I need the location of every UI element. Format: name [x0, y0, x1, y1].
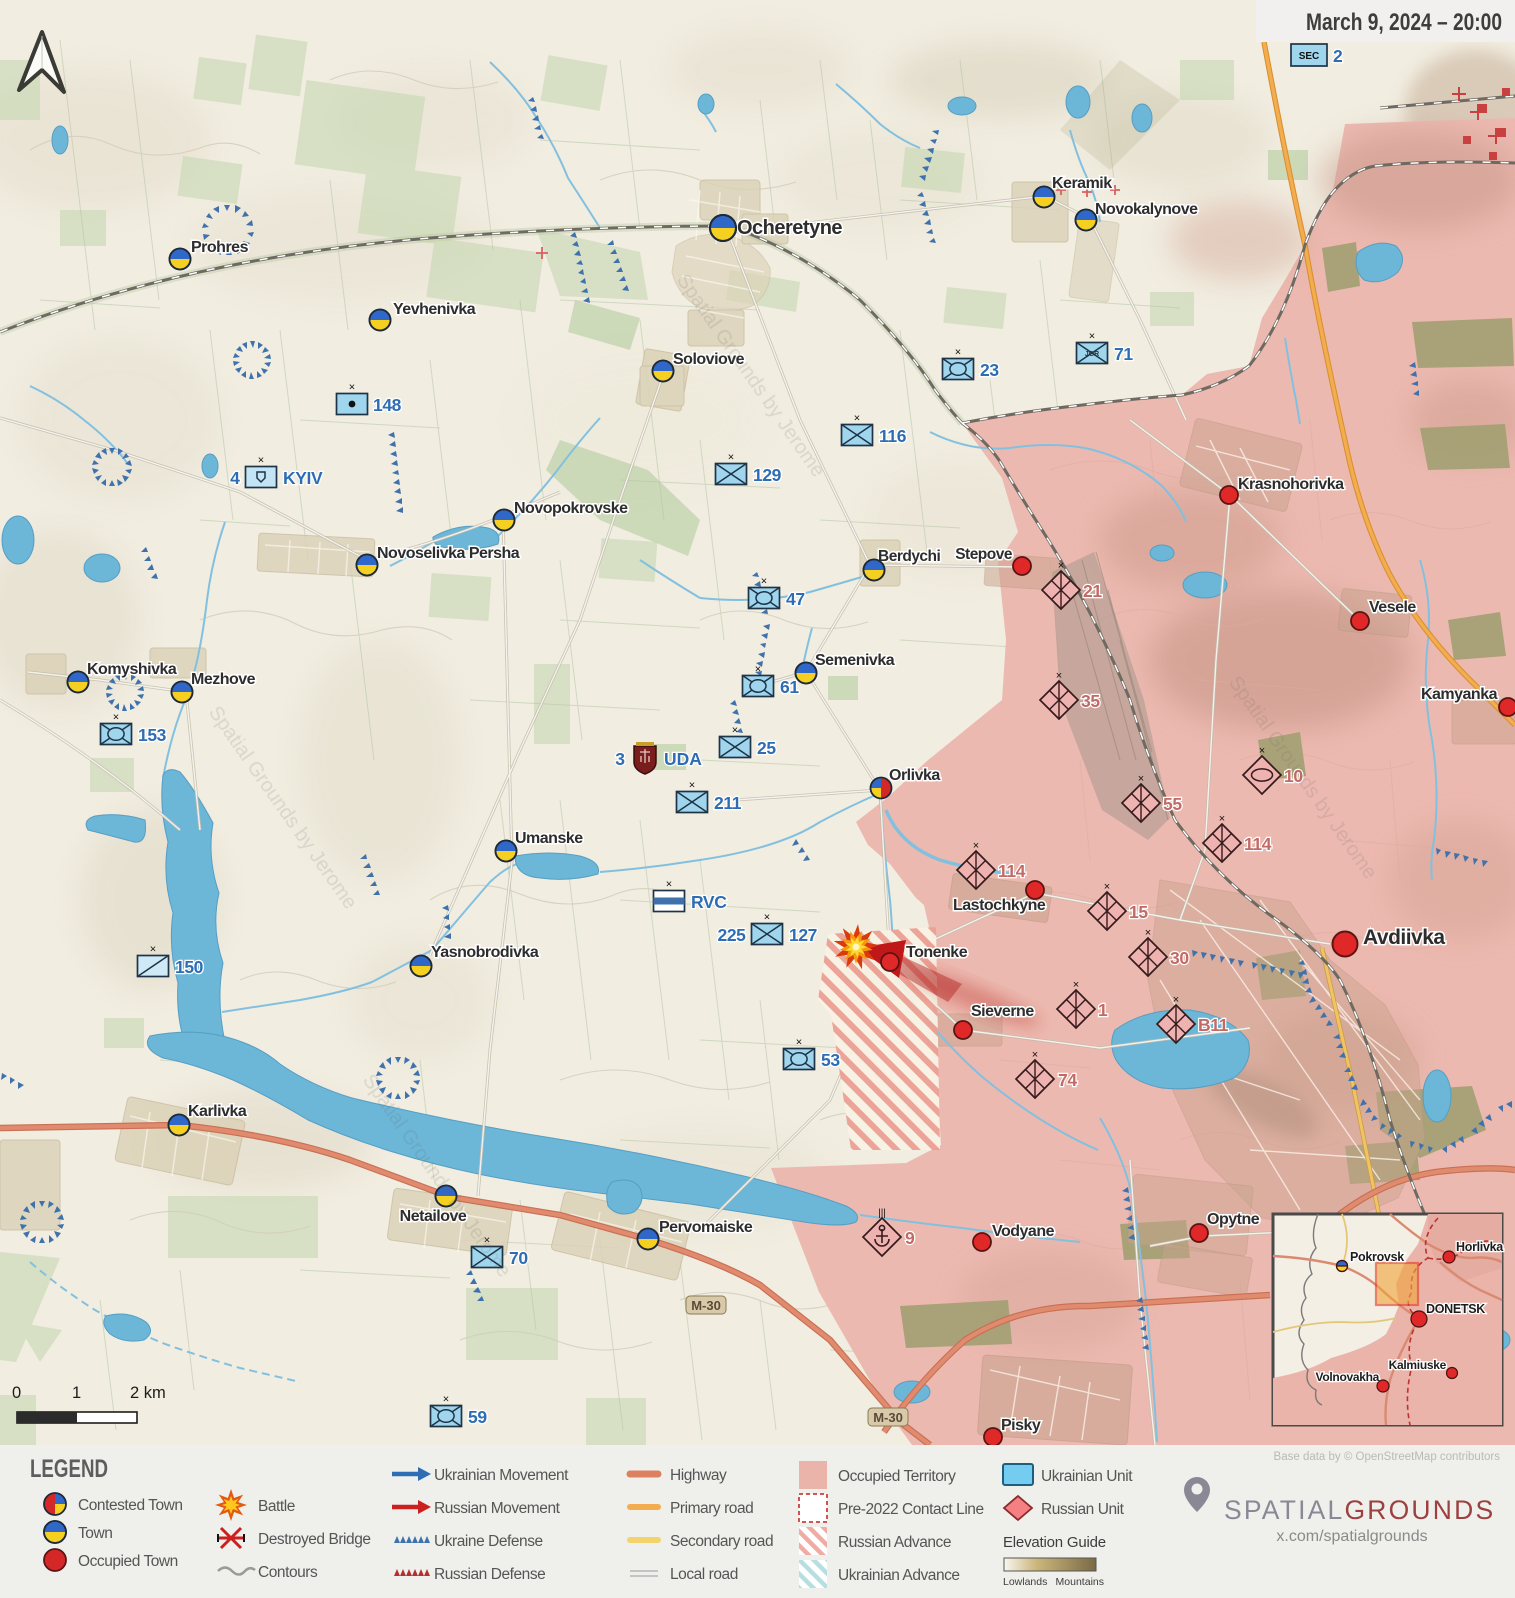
svg-text:Russian Advance: Russian Advance: [838, 1534, 951, 1551]
svg-text:Mezhove: Mezhove: [191, 671, 256, 688]
svg-text:Base data by © OpenStreetMap c: Base data by © OpenStreetMap contributor…: [1274, 1451, 1501, 1463]
svg-text:61: 61: [780, 677, 799, 697]
svg-text:Novoselivka Persha: Novoselivka Persha: [377, 545, 520, 562]
svg-text:211: 211: [714, 793, 742, 813]
svg-text:Contested Town: Contested Town: [78, 1497, 183, 1514]
svg-text:Occupied Territory: Occupied Territory: [838, 1468, 956, 1485]
svg-text:×: ×: [796, 1037, 802, 1049]
svg-text:Horlivka: Horlivka: [1456, 1240, 1504, 1254]
svg-text:×: ×: [732, 725, 738, 737]
svg-text:Sieverne: Sieverne: [971, 1003, 1034, 1020]
svg-text:Karlivka: Karlivka: [188, 1103, 247, 1120]
svg-text:Umanske: Umanske: [515, 830, 583, 847]
svg-text:M-30: M-30: [873, 1410, 903, 1425]
svg-text:×: ×: [755, 664, 761, 676]
svg-text:59: 59: [468, 1407, 487, 1427]
svg-text:Russian Movement: Russian Movement: [434, 1500, 561, 1517]
svg-text:Ukrainian Movement: Ukrainian Movement: [434, 1467, 569, 1484]
svg-text:×: ×: [1259, 745, 1265, 757]
svg-text:Elevation Guide: Elevation Guide: [1003, 1534, 1106, 1551]
svg-text:×: ×: [728, 452, 734, 464]
svg-text:×: ×: [1145, 927, 1151, 939]
svg-text:Krasnohorivka: Krasnohorivka: [1238, 476, 1344, 493]
svg-text:23: 23: [980, 360, 999, 380]
svg-text:2 km: 2 km: [130, 1384, 166, 1402]
svg-text:Ocheretyne: Ocheretyne: [737, 217, 842, 239]
svg-text:|||: |||: [878, 1208, 886, 1219]
svg-text:SEC: SEC: [1299, 51, 1320, 62]
svg-text:129: 129: [753, 465, 782, 485]
svg-text:153: 153: [138, 725, 167, 745]
svg-text:225: 225: [718, 925, 747, 945]
svg-text:RVC: RVC: [691, 892, 727, 912]
svg-text:Yasnobrodivka: Yasnobrodivka: [431, 944, 539, 961]
svg-text:Tonenke: Tonenke: [906, 944, 968, 961]
svg-text:LEGEND: LEGEND: [30, 1455, 108, 1483]
svg-text:1: 1: [72, 1384, 81, 1402]
svg-text:Destroyed Bridge: Destroyed Bridge: [258, 1531, 371, 1548]
svg-text:×: ×: [258, 455, 264, 467]
svg-text:Secondary road: Secondary road: [670, 1533, 773, 1550]
svg-text:×: ×: [854, 413, 860, 425]
svg-text:Yevhenivka: Yevhenivka: [393, 301, 476, 318]
svg-text:Opytne: Opytne: [1207, 1211, 1260, 1228]
svg-text:×: ×: [1138, 773, 1144, 785]
svg-text:UDA: UDA: [664, 749, 702, 769]
svg-text:74: 74: [1058, 1070, 1077, 1090]
svg-text:SPATIALGROUNDS: SPATIALGROUNDS: [1224, 1495, 1495, 1525]
svg-text:25: 25: [757, 738, 776, 758]
svg-text:Berdychi: Berdychi: [878, 548, 941, 565]
svg-text:×: ×: [1073, 979, 1079, 991]
svg-text:3: 3: [615, 749, 625, 769]
svg-text:×: ×: [1056, 670, 1062, 682]
svg-text:Stepove: Stepove: [955, 546, 1013, 563]
svg-text:150: 150: [175, 957, 204, 977]
svg-text:Pre-2022 Contact Line: Pre-2022 Contact Line: [838, 1501, 984, 1518]
svg-text:9: 9: [905, 1228, 915, 1248]
svg-text:Kamyanka: Kamyanka: [1421, 686, 1498, 703]
svg-text:KYIV: KYIV: [283, 468, 323, 488]
svg-text:Pisky: Pisky: [1001, 1417, 1041, 1434]
svg-text:30: 30: [1170, 948, 1189, 968]
svg-text:Occupied Town: Occupied Town: [78, 1553, 178, 1570]
svg-text:114: 114: [998, 861, 1026, 881]
svg-text:55: 55: [1163, 794, 1182, 814]
svg-text:15: 15: [1129, 902, 1148, 922]
svg-text:Semenivka: Semenivka: [815, 652, 895, 669]
svg-text:2: 2: [1333, 46, 1343, 66]
svg-text:Komyshivka: Komyshivka: [87, 661, 177, 678]
svg-text:×: ×: [1089, 331, 1095, 343]
svg-text:×: ×: [349, 382, 355, 394]
svg-text:JGR: JGR: [1085, 351, 1099, 358]
svg-text:114: 114: [1244, 834, 1272, 854]
svg-text:×: ×: [1219, 813, 1225, 825]
svg-text:×: ×: [150, 944, 156, 956]
svg-text:35: 35: [1081, 691, 1100, 711]
svg-text:Highway: Highway: [670, 1467, 727, 1484]
svg-text:Novokalynove: Novokalynove: [1095, 201, 1198, 218]
svg-text:×: ×: [955, 347, 961, 359]
svg-text:x.com/spatialgrounds: x.com/spatialgrounds: [1276, 1528, 1427, 1545]
svg-text:×: ×: [689, 780, 695, 792]
svg-text:Prohres: Prohres: [191, 239, 249, 256]
svg-text:116: 116: [879, 426, 907, 446]
svg-text:127: 127: [789, 925, 817, 945]
svg-text:Town: Town: [78, 1525, 112, 1542]
svg-text:Russian Defense: Russian Defense: [434, 1566, 545, 1583]
svg-text:Pervomaiske: Pervomaiske: [659, 1219, 753, 1236]
svg-text:×: ×: [113, 712, 119, 724]
svg-text:Primary road: Primary road: [670, 1500, 753, 1517]
svg-text:×: ×: [1173, 994, 1179, 1006]
svg-text:148: 148: [373, 395, 402, 415]
svg-text:M-30: M-30: [691, 1298, 721, 1313]
svg-text:71: 71: [1114, 344, 1133, 364]
svg-text:Ukrainian Unit: Ukrainian Unit: [1041, 1468, 1133, 1485]
svg-text:Volnovakha: Volnovakha: [1316, 1370, 1380, 1384]
svg-text:Pokrovsk: Pokrovsk: [1350, 1250, 1404, 1264]
svg-text:Local road: Local road: [670, 1566, 738, 1583]
svg-text:×: ×: [761, 576, 767, 588]
svg-text:53: 53: [821, 1050, 840, 1070]
svg-text:Avdiivka: Avdiivka: [1363, 926, 1445, 949]
svg-text:1: 1: [1098, 1000, 1108, 1020]
svg-text:Orlivka: Orlivka: [889, 767, 940, 784]
svg-text:Kalmiuske: Kalmiuske: [1389, 1358, 1447, 1372]
svg-text:Contours: Contours: [258, 1564, 318, 1581]
svg-text:Vesele: Vesele: [1369, 599, 1416, 616]
svg-text:4: 4: [230, 468, 240, 488]
svg-text:47: 47: [786, 589, 805, 609]
svg-text:×: ×: [764, 912, 770, 924]
svg-text:Battle: Battle: [258, 1498, 295, 1515]
svg-text:×: ×: [666, 879, 672, 891]
svg-text:Vodyane: Vodyane: [992, 1223, 1055, 1240]
svg-text:×: ×: [1058, 560, 1064, 572]
svg-text:Mountains: Mountains: [1056, 1576, 1104, 1588]
svg-text:×: ×: [973, 840, 979, 852]
svg-text:DONETSK: DONETSK: [1426, 1302, 1485, 1316]
svg-text:Novopokrovske: Novopokrovske: [514, 500, 628, 517]
svg-text:21: 21: [1083, 581, 1102, 601]
svg-text:×: ×: [1104, 881, 1110, 893]
svg-text:March 9, 2024 – 20:00: March 9, 2024 – 20:00: [1306, 9, 1502, 36]
svg-text:×: ×: [443, 1394, 449, 1406]
svg-text:Keramik: Keramik: [1052, 175, 1112, 192]
svg-text:B11: B11: [1198, 1015, 1229, 1035]
svg-text:Lowlands: Lowlands: [1003, 1576, 1047, 1588]
svg-text:Ukrainian Advance: Ukrainian Advance: [838, 1567, 960, 1584]
svg-text:Ukraine Defense: Ukraine Defense: [434, 1533, 543, 1550]
svg-text:0: 0: [12, 1384, 21, 1402]
svg-text:×: ×: [1032, 1049, 1038, 1061]
svg-text:Russian Unit: Russian Unit: [1041, 1501, 1125, 1518]
svg-text:Lastochkyne: Lastochkyne: [953, 897, 1046, 914]
